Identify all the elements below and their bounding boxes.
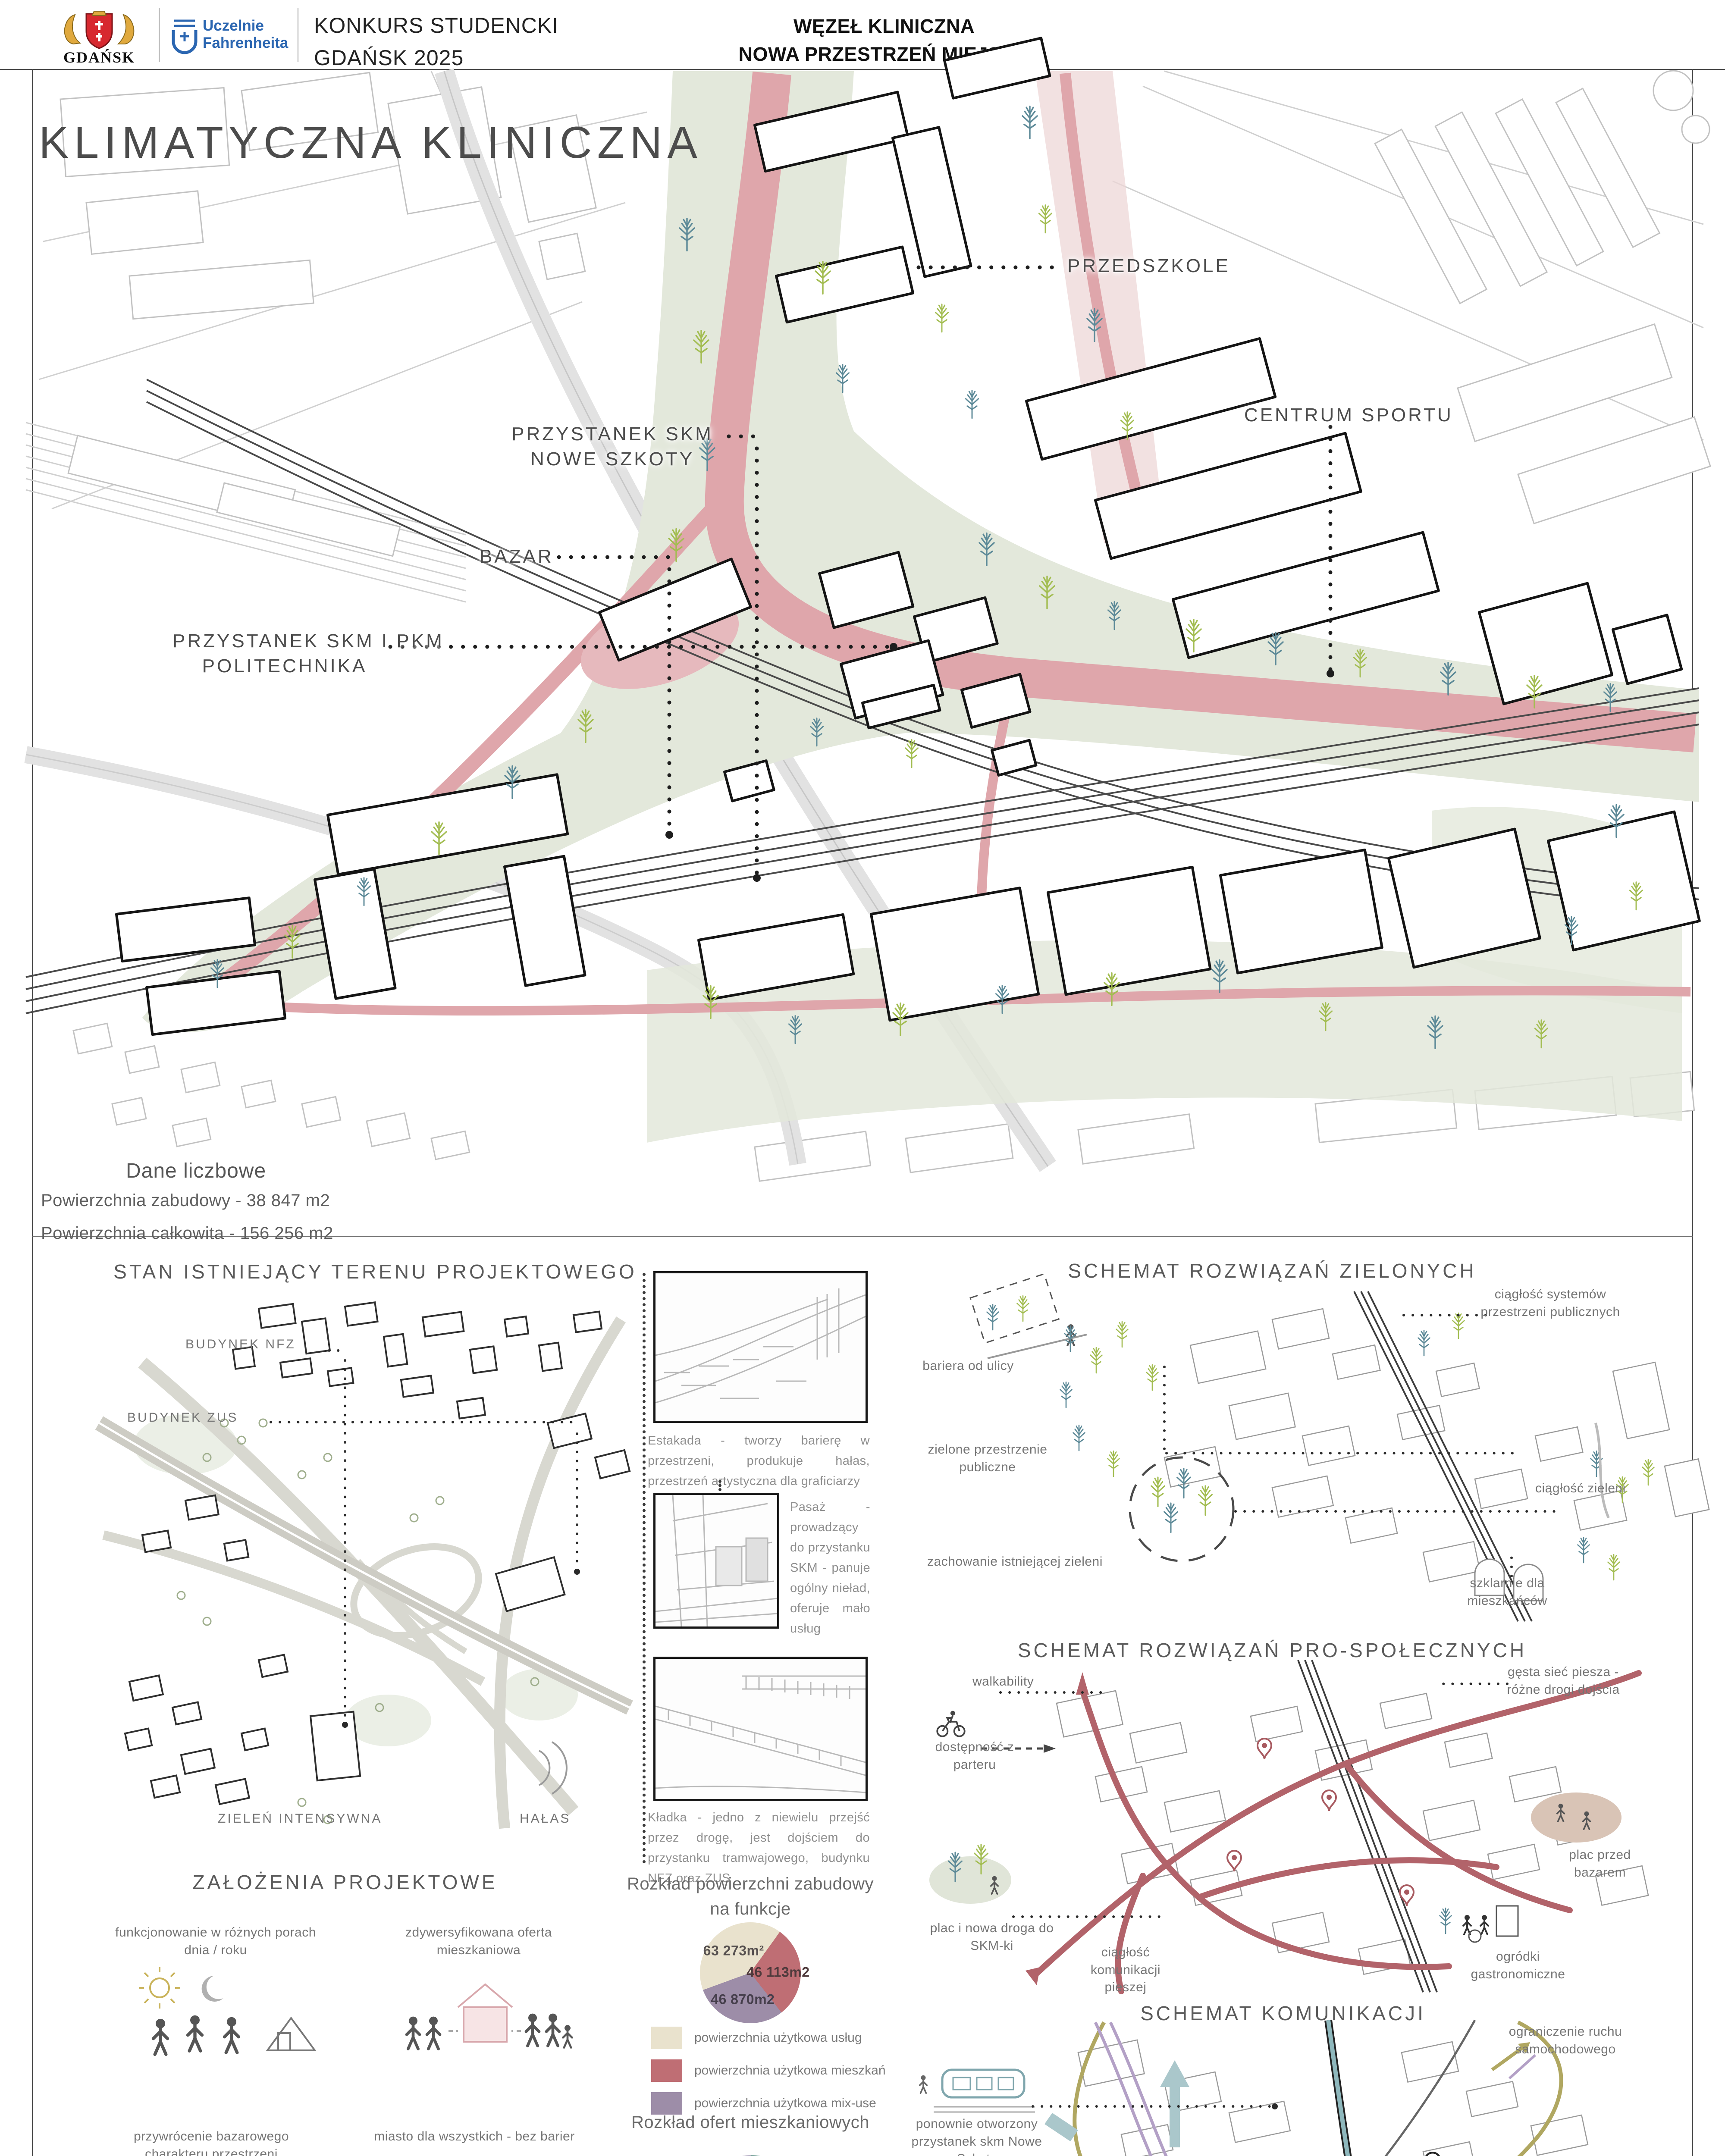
label-zielone-przestrzenie: zielone przestrzenie publiczne: [914, 1441, 1061, 1476]
main-plan-drawing: [32, 70, 1693, 1236]
photo-pasaz: [653, 1493, 779, 1629]
zus-building: [496, 1557, 565, 1611]
legend-swatch: [651, 2027, 682, 2049]
label-przystanek-skm-2: NOWE SZKOTY: [500, 448, 724, 470]
label-zalozenie-3: przywrócenie bazarowego charakteru przes…: [108, 2128, 315, 2156]
plac-skm-blob: [929, 1845, 1011, 1904]
dotted-connector-1: [718, 1480, 721, 1491]
label-plac-przed-bazarem: plac przed bazarem: [1544, 1846, 1656, 1881]
legend-label: powierzchnia użytkowa usług: [694, 2031, 862, 2045]
dane-liczbowe-title: Dane liczbowe: [126, 1159, 266, 1183]
label-dostepnosc: dostępność z parteru: [923, 1739, 1026, 1774]
caption-pasaz: Pasaż - prowadzący do przystanku SKM - p…: [790, 1497, 870, 1639]
zalozenia-title: ZAŁOŻENIA PROJEKTOWE: [129, 1871, 561, 1894]
komunikacja-title: SCHEMAT KOMUNIKACJI: [1035, 2002, 1531, 2025]
label-zalozenie-4: miasto dla wszystkich - bez barier: [371, 2128, 578, 2146]
label-ciaglosc-zieleni: ciągłość zieleni: [1535, 1480, 1647, 1498]
photo-estakada: [653, 1271, 868, 1423]
label-zachowanie-zieleni: zachowanie istniejącej zieleni: [927, 1553, 1126, 1571]
label-zalozenie-1: funkcjonowanie w różnych porach dnia / r…: [112, 1924, 319, 1959]
bariera-mini-diagram: [970, 1274, 1087, 1358]
label-budynek-zus: BUDYNEK ZUS: [127, 1409, 238, 1427]
label-walkability: walkability: [972, 1673, 1034, 1691]
label-przystanek-skm-1: PRZYSTANEK SKM: [500, 423, 724, 445]
label-ponownie-otworzony: ponownie otworzony przystanek skm Nowe S…: [906, 2115, 1048, 2156]
cyclist-icon: [937, 1711, 964, 1736]
label-halas: HAŁAS: [520, 1810, 571, 1828]
house-icon: [458, 1984, 512, 2042]
photo-column-dotted-line: [643, 1273, 646, 1864]
label-politechnika-1: PRZYSTANEK SKM I PKM: [172, 630, 397, 652]
stan-istniejacy-diagram: [78, 1285, 638, 1837]
header-divider-2: [298, 8, 298, 62]
shield-icon: [86, 11, 112, 48]
label-ciaglosc-komunikacji: ciągłość komunikacji pieszej: [1069, 1944, 1182, 1996]
pie1-legend: powierzchnia użytkowa usługpowierzchnia …: [651, 2027, 886, 2115]
pie-slice-label: 46 113m2: [746, 1964, 809, 1980]
pie-slice-label: 46 870m2: [711, 1991, 775, 2007]
legend-label: powierzchnia użytkowa mieszkań: [694, 2063, 886, 2078]
label-zalozenie-2: zdywersyfikowana oferta mieszkaniowa: [375, 1924, 582, 1959]
legend-row: powierzchnia użytkowa mieszkań: [651, 2059, 886, 2082]
pie2-title: Rozkład ofert mieszkaniowych: [625, 2110, 875, 2135]
legend-swatch: [651, 2059, 682, 2082]
label-politechnika-2: POLITECHNIKA: [172, 655, 397, 677]
prospoleczne-title: SCHEMAT ROZWIĄZAŃ PRO-SPOŁECZNYCH: [1013, 1639, 1531, 1662]
label-zielen-intensywna: ZIELEŃ INTENSYWNA: [218, 1810, 382, 1828]
pie1-title: Rozkład powierzchni zabudowy na funkcje: [625, 1871, 875, 1921]
estakada-sketch: [655, 1273, 866, 1421]
label-ciaglosc-systemow: ciągłość systemów przestrzeni publicznyc…: [1475, 1286, 1626, 1321]
label-plac-nowa-droga: plac i nowa droga do SKM-ki: [919, 1920, 1065, 1955]
label-bariera-od-ulicy: bariera od ulicy: [919, 1357, 1018, 1375]
pasaz-sketch: [655, 1495, 777, 1626]
icon-oferta-mieszkaniowa: [384, 1966, 582, 2065]
plac-przed-bazarem-blob: [1531, 1792, 1621, 1843]
nfz-building: [310, 1712, 360, 1781]
competition-title: KONKURS STUDENCKI GDAŃSK 2025: [314, 9, 558, 74]
dane-row-calkowita: Powierzchnia całkowita - 156 256 m2: [41, 1224, 333, 1243]
photo-kladka: [653, 1657, 868, 1801]
page-title: KLIMATYCZNA KLINICZNA: [39, 117, 703, 169]
label-centrum-sportu: CENTRUM SPORTU: [1244, 404, 1453, 426]
fahrenheit-logo-icon: [167, 17, 202, 56]
label-budynek-nfz: BUDYNEK NFZ: [185, 1336, 296, 1354]
label-przedszkole: PRZEDSZKOLE: [1067, 255, 1230, 277]
legend-label: powierzchnia użytkowa mix-use: [694, 2096, 876, 2111]
skm-line: [1328, 2020, 1393, 2156]
label-bazar: BAZAR: [480, 546, 554, 567]
legend-row: powierzchnia użytkowa usług: [651, 2027, 886, 2049]
ogrodki-icons: [1440, 1906, 1518, 1942]
kladka-sketch: [655, 1659, 866, 1799]
train-icon: [920, 2070, 1035, 2112]
lion-right-icon: [118, 15, 134, 44]
gdansk-crest-logo: [56, 6, 142, 49]
lion-left-icon: [65, 15, 80, 44]
label-szklarnie: szklarnie dla mieszkańców: [1445, 1575, 1570, 1610]
tent-icon: [267, 2018, 315, 2050]
dane-row-zabudowa: Powierzchnia zabudowy - 38 847 m2: [41, 1191, 330, 1210]
zielone-title: SCHEMAT ROZWIĄZAŃ ZIELONYCH: [1057, 1259, 1488, 1282]
fahrenheit-logo-text: Uczelnie Fahrenheita: [203, 17, 288, 52]
moon-icon: [202, 1976, 223, 2002]
competition-board: P GDAŃSK: [0, 0, 1725, 2156]
gdansk-logo-text: GDAŃSK: [60, 48, 138, 66]
stan-title: STAN ISTNIEJĄCY TERENU PROJEKTOWEGO: [108, 1260, 643, 1283]
pie-chart-powierzchnie: 63 273m²46 113m246 870m2: [700, 1922, 801, 2023]
icon-pory-dnia: [129, 1966, 328, 2065]
label-ogrodki: ogródki gastronomiczne: [1453, 1948, 1583, 1983]
header-divider-1: [159, 8, 160, 62]
caption-estakada: Estakada - tworzy barierę w przestrzeni,…: [648, 1431, 870, 1492]
pie-slice-label: 63 273m²: [703, 1943, 764, 1959]
label-ograniczenie-ruchu: ograniczenie ruchu samochodowego: [1496, 2023, 1634, 2058]
label-gesta-siec: gęsta sieć piesza - różne drogi dojścia: [1501, 1664, 1626, 1698]
